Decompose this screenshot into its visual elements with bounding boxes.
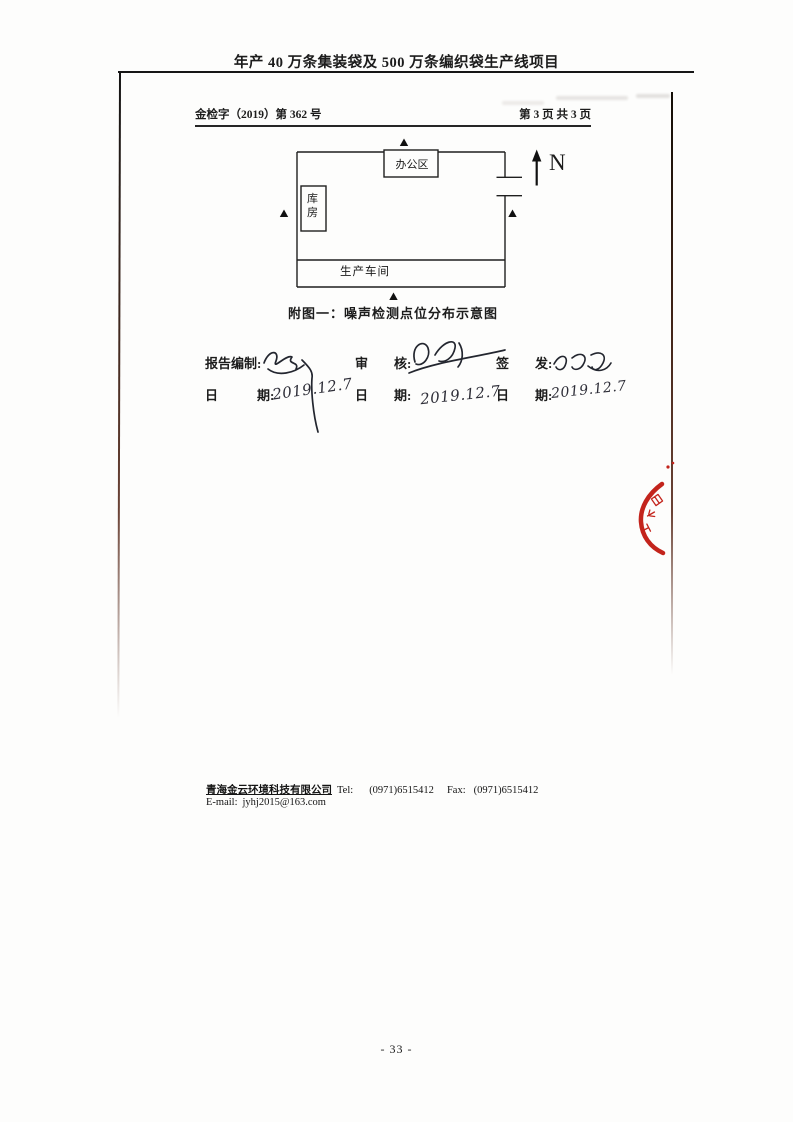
footer-company: 青海金云环境科技有限公司 <box>206 785 332 796</box>
scan-smudge <box>636 94 670 98</box>
warehouse-label: 库房 <box>307 192 320 220</box>
footer-email: jyhj2015@163.com <box>243 797 326 808</box>
north-label: N <box>549 150 566 176</box>
footer-tel: (0971)6515412 <box>369 785 434 796</box>
report-author-label: 报告编制: <box>205 353 261 372</box>
noise-point-icon-south <box>389 293 397 301</box>
noise-point-icon-west <box>280 210 288 218</box>
date-handwriting-reviewer: 2019.12.7 <box>419 382 501 408</box>
footer-email-label: E-mail: <box>206 797 238 808</box>
left-page-edge <box>117 73 121 718</box>
date-label-issuer: 日 期: <box>496 385 552 404</box>
page-indicator: 第 3 页 共 3 页 <box>519 106 591 122</box>
document-page: 年产 40 万条集装袋及 500 万条编织袋生产线项目 金检字（2019）第 3… <box>0 0 793 1122</box>
figure-caption: 附图一：噪声检测点位分布示意图 <box>288 303 498 322</box>
date-handwriting-issuer: 2019.12.7 <box>550 378 627 402</box>
signature-scribble-reviewer <box>404 333 509 383</box>
footer-fax-label: Fax: <box>447 785 466 796</box>
scan-smudge <box>556 96 628 100</box>
footer-fax: (0971)6515412 <box>474 785 539 796</box>
red-seal-icon <box>628 458 688 568</box>
signature-scribble-issuer <box>548 345 614 377</box>
page-title: 年产 40 万条集装袋及 500 万条编织袋生产线项目 <box>0 51 793 72</box>
office-area-label: 办公区 <box>386 156 438 172</box>
noise-point-icon-north <box>400 139 408 147</box>
right-page-edge <box>671 92 673 675</box>
noise-point-icon-east <box>508 210 516 218</box>
footer-tel-label: Tel: <box>337 785 353 796</box>
date-label-reviewer: 日 期: <box>355 385 411 404</box>
gate-icon <box>497 177 523 195</box>
page-number: - 33 - <box>0 1042 793 1057</box>
scan-smudge <box>502 101 544 105</box>
reviewer-label: 审 核: <box>355 353 411 372</box>
header-rule <box>118 71 694 73</box>
date-label-author: 日 期: <box>205 385 274 404</box>
report-number-row: 金检字（2019）第 362 号 第 3 页 共 3 页 <box>195 106 591 127</box>
footer-line-2: E-mail:jyhj2015@163.com <box>206 797 326 808</box>
workshop-label: 生产车间 <box>340 263 390 279</box>
footer-line-1: 青海金云环境科技有限公司Tel:(0971)6515412Fax:(0971)6… <box>206 782 538 797</box>
report-number: 金检字（2019）第 362 号 <box>195 106 322 122</box>
north-arrow-icon <box>532 150 541 186</box>
